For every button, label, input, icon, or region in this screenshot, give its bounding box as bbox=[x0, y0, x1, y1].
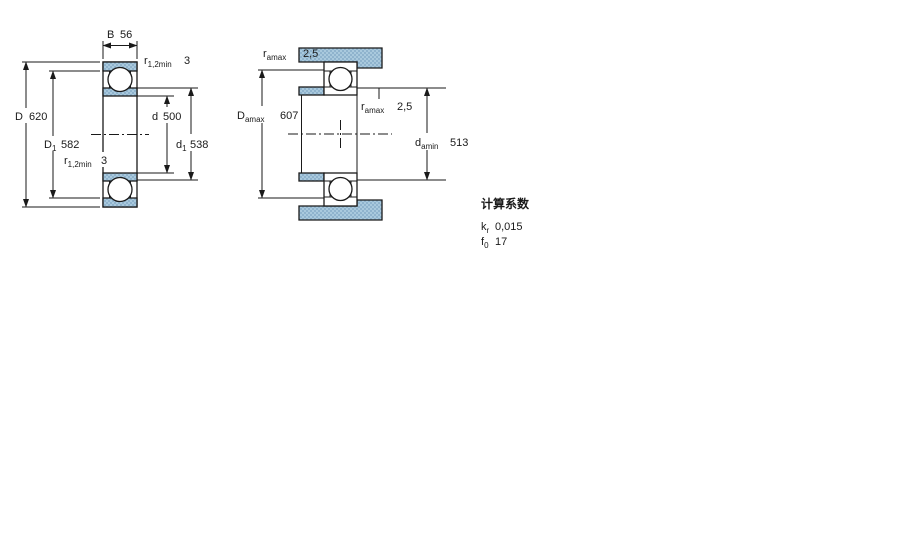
bearing-drawing-page: B56 r1,2min3 D620 D1582 r1,2min3 bbox=[0, 0, 900, 560]
right-figure-mounting-section: ramax2,5 Damax607 ramax2,5 damin513 bbox=[233, 48, 471, 220]
dimension-B-label: B56 bbox=[107, 29, 132, 41]
calculation-factors-title: 计算系数 bbox=[481, 196, 530, 211]
dimension-ramax-mid-label: ramax2,5 bbox=[361, 101, 412, 115]
shaft-shoulder-top bbox=[299, 87, 324, 95]
dimension-D: D620 bbox=[12, 62, 100, 207]
ball-bottom bbox=[108, 178, 132, 202]
factor-f0: f017 bbox=[481, 236, 507, 250]
ball-bottom bbox=[329, 178, 352, 201]
dimension-r12min-bottom-label: r1,2min3 bbox=[64, 155, 107, 169]
dimension-D1-label: D1582 bbox=[44, 139, 79, 153]
ball-top bbox=[108, 68, 132, 92]
shaft-shoulder-bottom bbox=[299, 173, 324, 181]
dimension-B: B56 bbox=[103, 29, 137, 59]
dimension-ramax-top-label: ramax2,5 bbox=[263, 48, 318, 62]
calculation-factors-block: 计算系数 kr0,015 f017 bbox=[481, 196, 530, 250]
dimension-r12min-top-label: r1,2min3 bbox=[144, 55, 190, 69]
factor-kr: kr0,015 bbox=[481, 221, 523, 235]
ball-top bbox=[329, 68, 352, 91]
left-figure-bearing-cross-section: B56 r1,2min3 D620 D1582 r1,2min3 bbox=[12, 29, 216, 207]
dimension-r12min-bottom: r1,2min3 bbox=[64, 152, 113, 169]
dimension-d1-label: d1538 bbox=[176, 139, 208, 153]
dimension-d-label: d500 bbox=[152, 111, 181, 123]
dimension-D-label: D620 bbox=[15, 111, 47, 123]
dimension-ramax-mid: ramax2,5 bbox=[361, 88, 412, 115]
bearing-dimension-drawing: B56 r1,2min3 D620 D1582 r1,2min3 bbox=[0, 0, 900, 560]
